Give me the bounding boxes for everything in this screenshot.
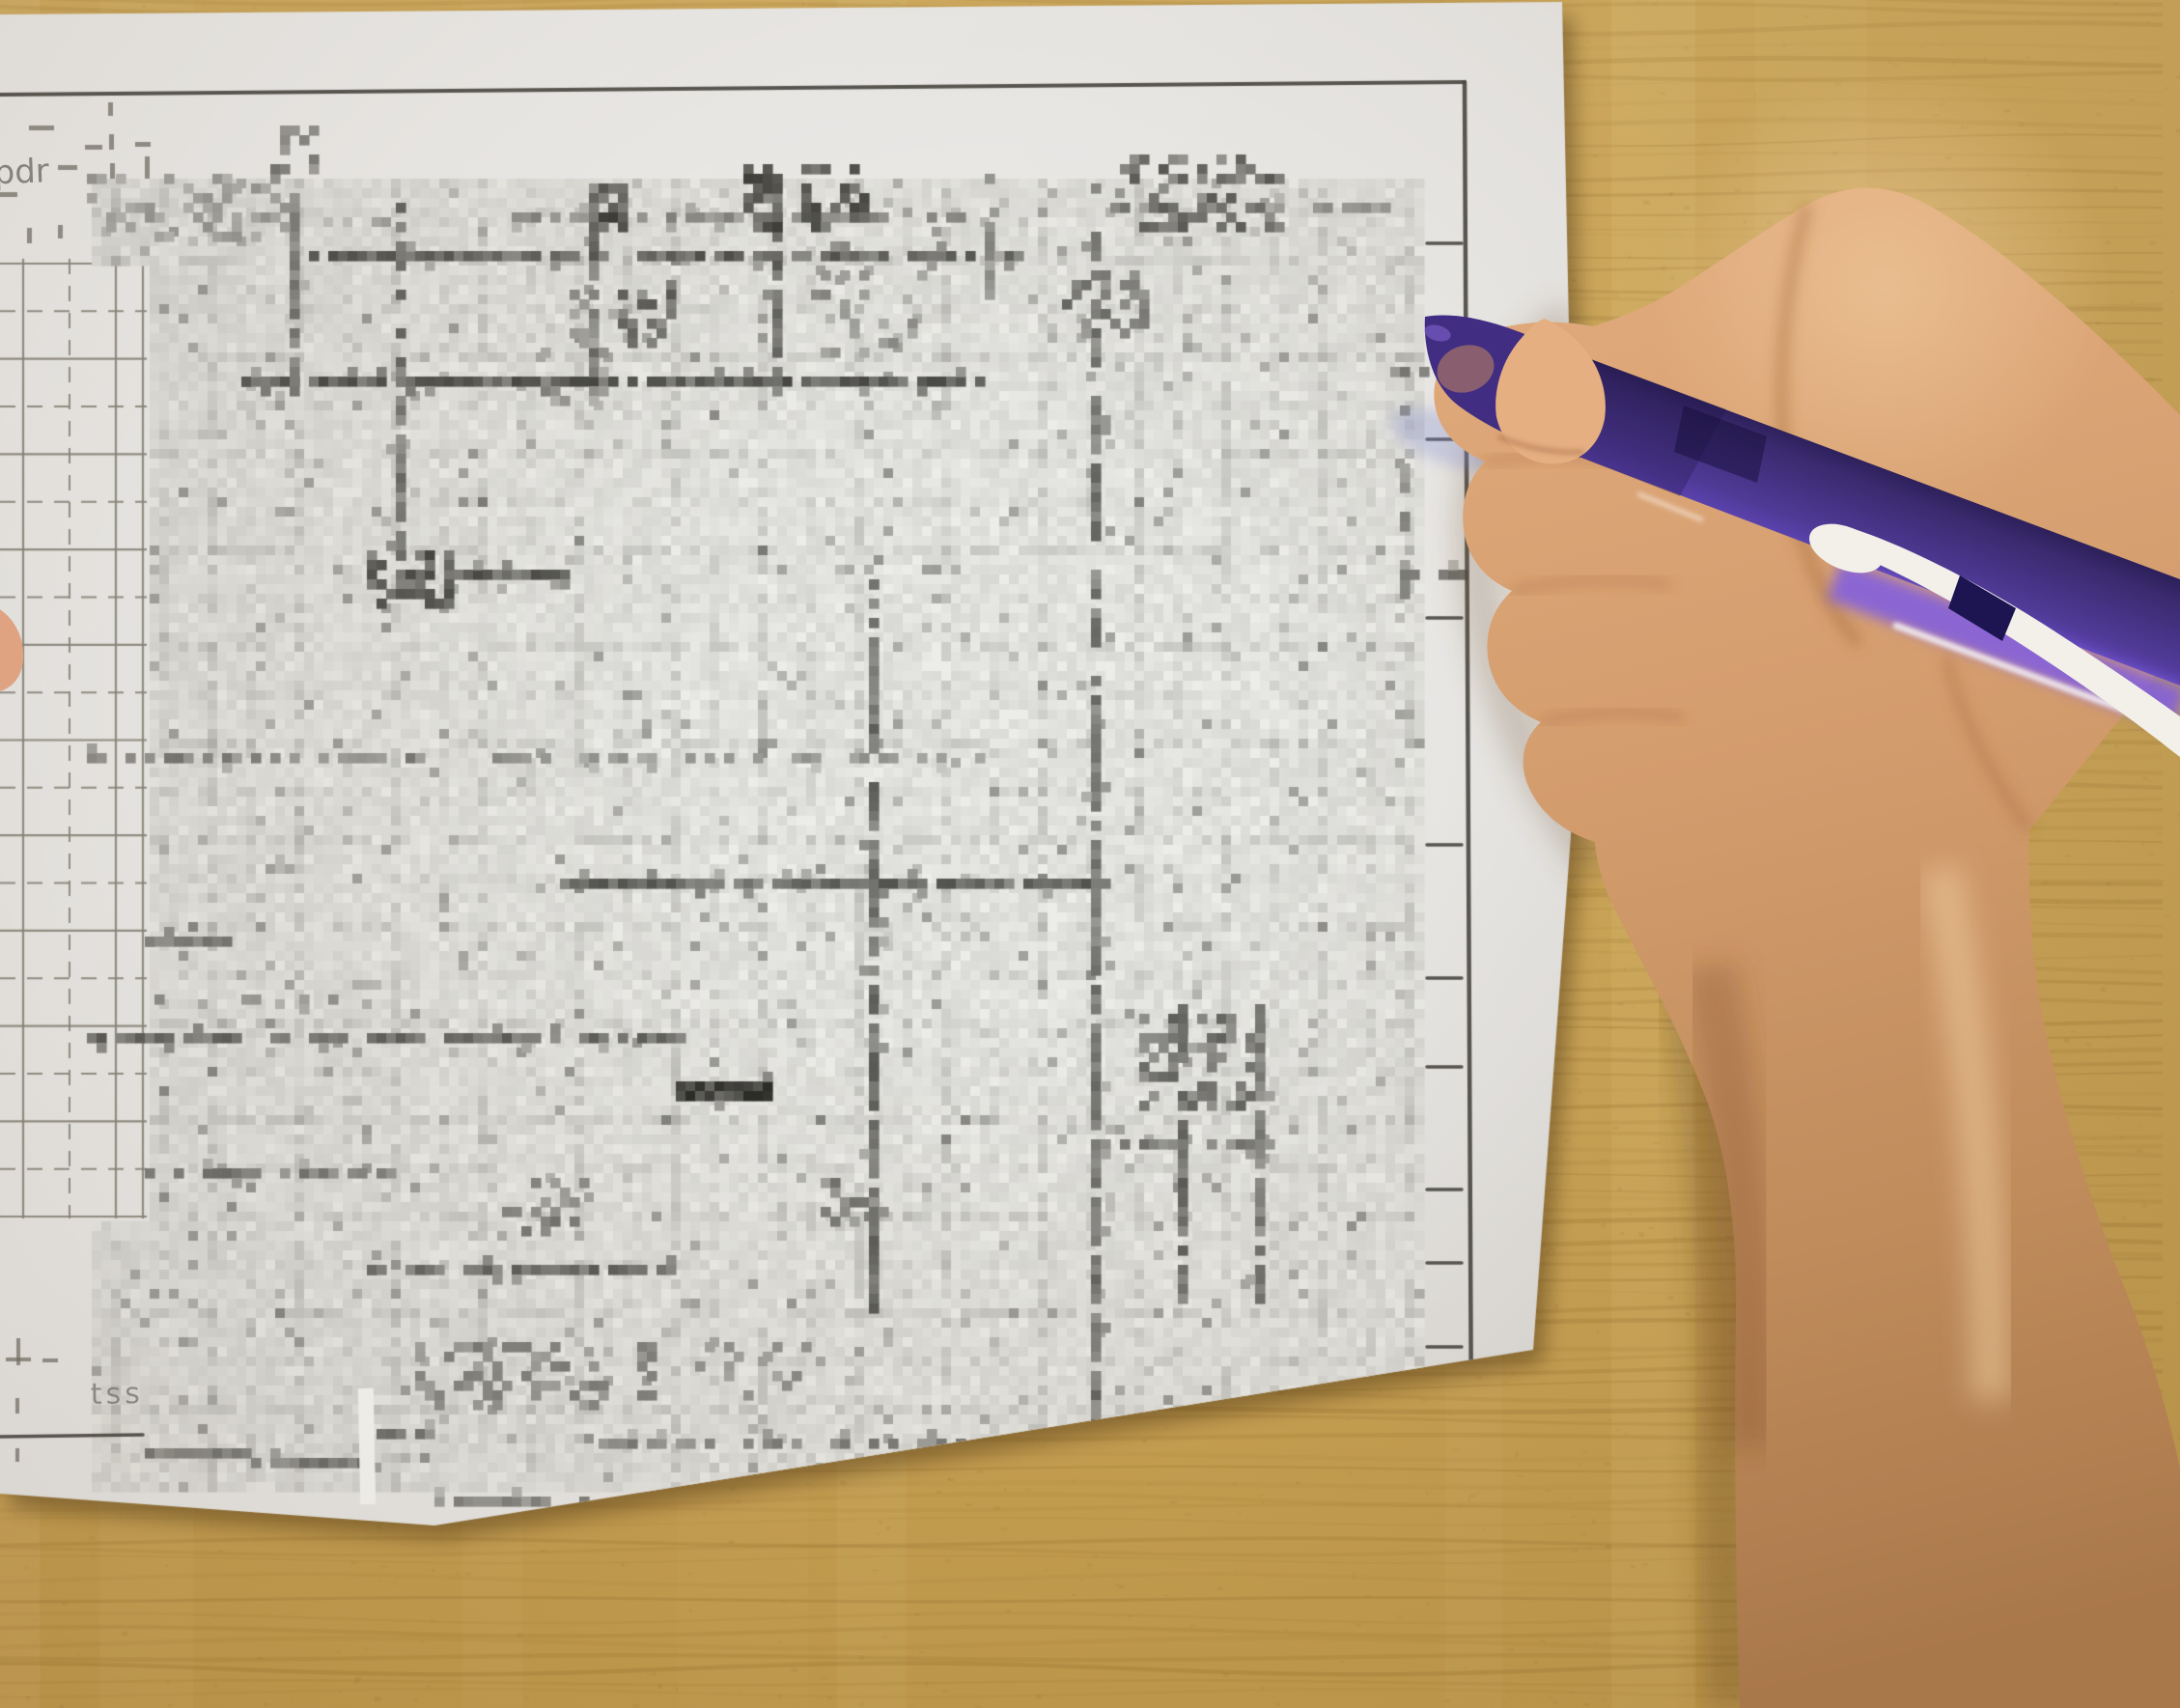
doc-text-bottom-left: tss (91, 1377, 145, 1412)
right-hand (1434, 58, 2180, 1708)
left-edge-fingertip (0, 606, 23, 691)
doc-text-top-left: pdr (0, 152, 49, 192)
foreground-overlay: pdr tss (0, 0, 2180, 1708)
photo-scene: pdr tss (0, 0, 2180, 1708)
